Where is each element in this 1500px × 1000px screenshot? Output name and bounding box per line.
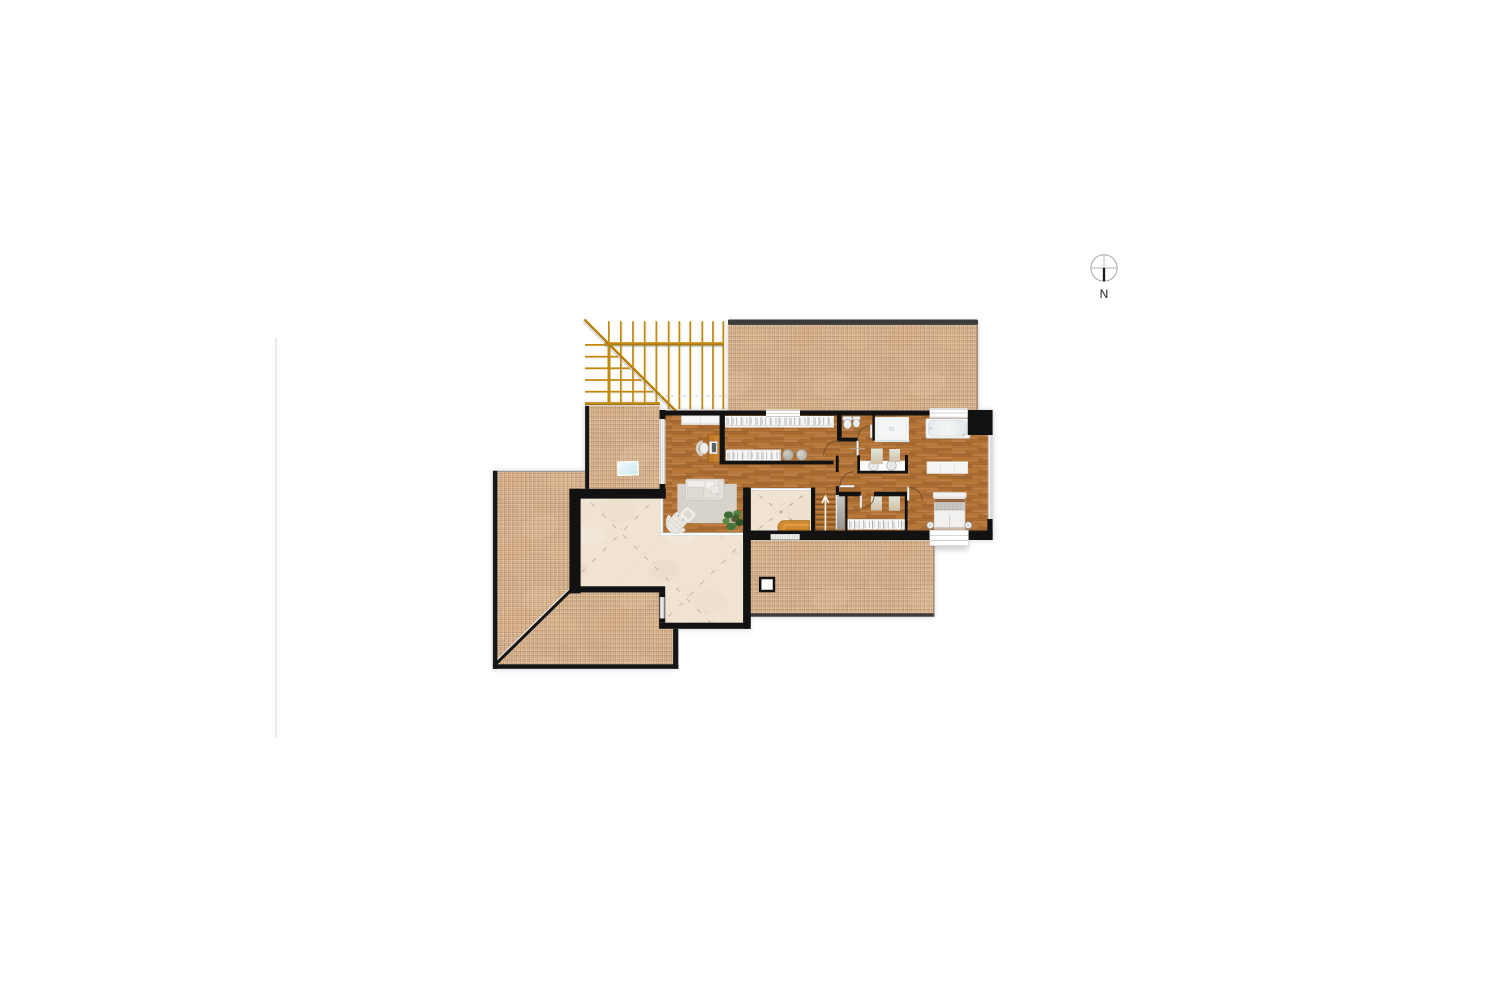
svg-text:N: N (1100, 287, 1109, 301)
